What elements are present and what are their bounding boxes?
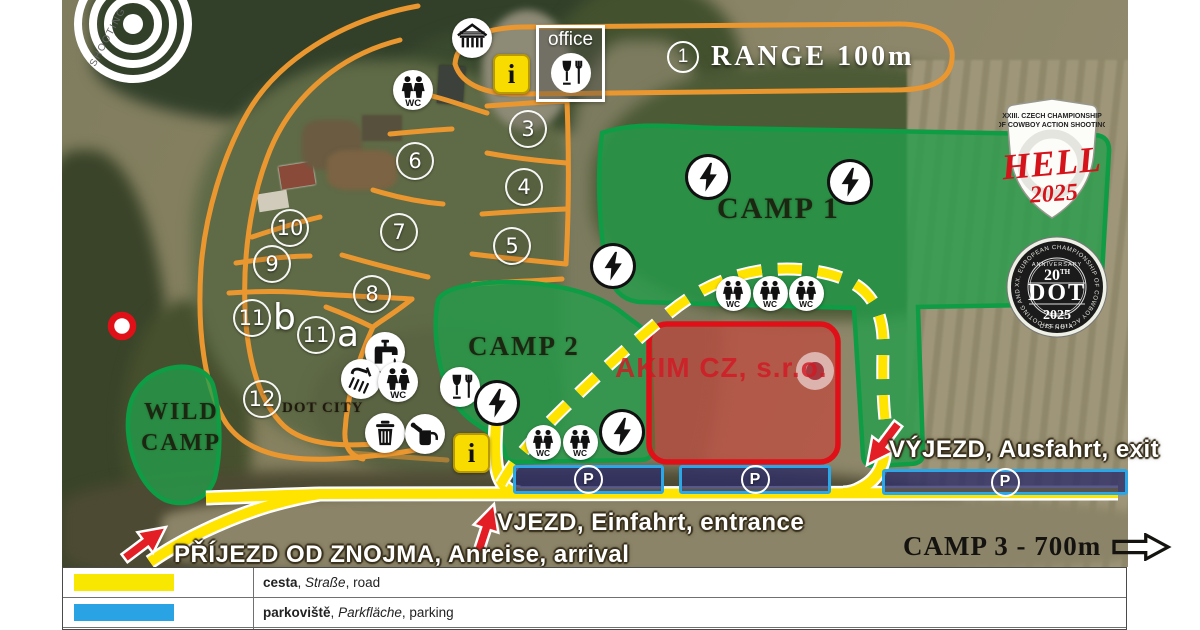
station-5: 5: [493, 227, 531, 265]
camp1-label: CAMP 1: [717, 192, 840, 226]
wc-icon: WC: [753, 276, 788, 311]
station-number: 6: [396, 142, 434, 180]
akim-label: AKIM CZ, s.r.o.: [615, 352, 828, 384]
station-number: 3: [509, 110, 547, 148]
parking-color-swatch: [74, 604, 174, 621]
station-1-circle: 1: [667, 41, 699, 73]
svg-text:WC: WC: [799, 299, 813, 308]
station-12: 12: [243, 380, 281, 418]
svg-text:CZECHIA: CZECHIA: [1040, 324, 1075, 330]
power-icon: [593, 246, 633, 286]
info-icon: i: [493, 54, 530, 94]
wild-camp-label-1: WILD: [144, 399, 219, 426]
wc-icon: WC: [563, 425, 598, 460]
station-6: 6: [396, 142, 434, 180]
trash-icon: [365, 413, 405, 453]
wild-camp-label-2: CAMP: [141, 430, 221, 457]
wc-icon: WC: [716, 276, 751, 311]
station-4: 4: [505, 168, 543, 206]
station-number: 4: [505, 168, 543, 206]
svg-text:WC: WC: [726, 299, 740, 308]
station-number: 9: [253, 245, 291, 283]
station-11b: 11b: [233, 299, 296, 337]
power-icon: [477, 383, 517, 423]
camp3-label: CAMP 3 - 700m: [903, 531, 1101, 562]
station-number: 12: [243, 380, 281, 418]
svg-text:XXIII. CZECH CHAMPIONSHIP: XXIII. CZECH CHAMPIONSHIP: [1002, 113, 1102, 120]
station-number: 10: [271, 209, 309, 247]
svg-text:WC: WC: [390, 390, 406, 399]
watering-can-icon: [405, 414, 445, 454]
station-9: 9: [253, 245, 291, 283]
wc-icon: WC: [526, 425, 561, 460]
station-7: 7: [380, 213, 418, 251]
dot-city-label: DOT CITY: [282, 400, 364, 417]
camp2-label: CAMP 2: [468, 331, 580, 362]
parking-strip: P: [882, 469, 1128, 495]
station-8: 8: [353, 275, 391, 313]
road-color-swatch: [74, 574, 174, 591]
power-icon: [830, 162, 870, 202]
parking-icon: P: [741, 465, 770, 494]
station-suffix: b: [273, 300, 296, 336]
info-icon: i: [453, 433, 490, 473]
legend-row-parking: parkoviště, Parkfläche, parking: [63, 598, 1126, 628]
station-number: 11: [297, 316, 335, 354]
wc-icon: WC: [789, 276, 824, 311]
station-3: 3: [509, 110, 547, 148]
power-icon: [688, 157, 728, 197]
parking-icon: P: [991, 468, 1020, 497]
office-building: office: [536, 25, 605, 102]
legend-road-text: cesta, Straße, road: [254, 568, 380, 597]
office-label: office: [548, 29, 593, 51]
svg-text:WC: WC: [573, 448, 587, 457]
food-icon: [440, 367, 480, 407]
svg-text:WC: WC: [763, 299, 777, 308]
power-icon: [602, 412, 642, 452]
site-map: SHOOTING office 1 RANGE 100m CAMP 1 CAMP…: [0, 0, 1200, 630]
hell-2025-badge: XXIII. CZECH CHAMPIONSHIP OF COWBOY ACTI…: [999, 96, 1105, 224]
dot-2025-badge: XX. EUROPEAN CHAMPIONSHIP OF COWBOY ACTI…: [1005, 235, 1109, 339]
exit-label: VÝJEZD, Ausfahrt, exit: [889, 436, 1159, 464]
parking-icon: P: [574, 465, 603, 494]
shelter-icon: [452, 18, 492, 58]
arrival-label: PŘÍJEZD OD ZNOJMA, Anreise, arrival: [174, 541, 629, 569]
legend-table: cesta, Straße, road parkoviště, Parkfläc…: [62, 567, 1127, 630]
legend-parking-text: parkoviště, Parkfläche, parking: [254, 598, 454, 627]
arrival-arrow: [117, 517, 174, 569]
station-number: 7: [380, 213, 418, 251]
station-11a: 11a: [297, 316, 359, 354]
akim-restricted-area: [649, 324, 838, 462]
camp3-pointer: CAMP 3 - 700m: [903, 531, 1173, 562]
svg-text:OF COWBOY ACTION SHOOTING: OF COWBOY ACTION SHOOTING: [999, 122, 1105, 129]
svg-text:DOT: DOT: [1028, 280, 1086, 306]
food-icon: [551, 53, 591, 93]
parking-strip: P: [679, 465, 831, 494]
station-number: 8: [353, 275, 391, 313]
entrance-label: VJEZD, Einfahrt, entrance: [497, 509, 804, 537]
station-10: 10: [271, 209, 309, 247]
right-arrow-icon: [1111, 533, 1173, 561]
svg-text:2025: 2025: [1043, 308, 1071, 323]
wc-icon: WC: [378, 362, 418, 402]
svg-text:2025: 2025: [1028, 179, 1079, 208]
shooting-club-logo: SHOOTING: [78, 0, 188, 79]
shower-icon: [341, 359, 381, 399]
parking-strip: P: [513, 465, 664, 494]
station-number: 5: [493, 227, 531, 265]
svg-text:WC: WC: [536, 448, 550, 457]
range-label: 1 RANGE 100m: [667, 41, 914, 73]
station-number: 11: [233, 299, 271, 337]
station-suffix: a: [337, 317, 359, 353]
svg-text:WC: WC: [405, 98, 421, 107]
legend-row-road: cesta, Straße, road: [63, 568, 1126, 598]
red-ring-marker: [111, 315, 133, 337]
wc-icon: WC: [393, 70, 433, 110]
